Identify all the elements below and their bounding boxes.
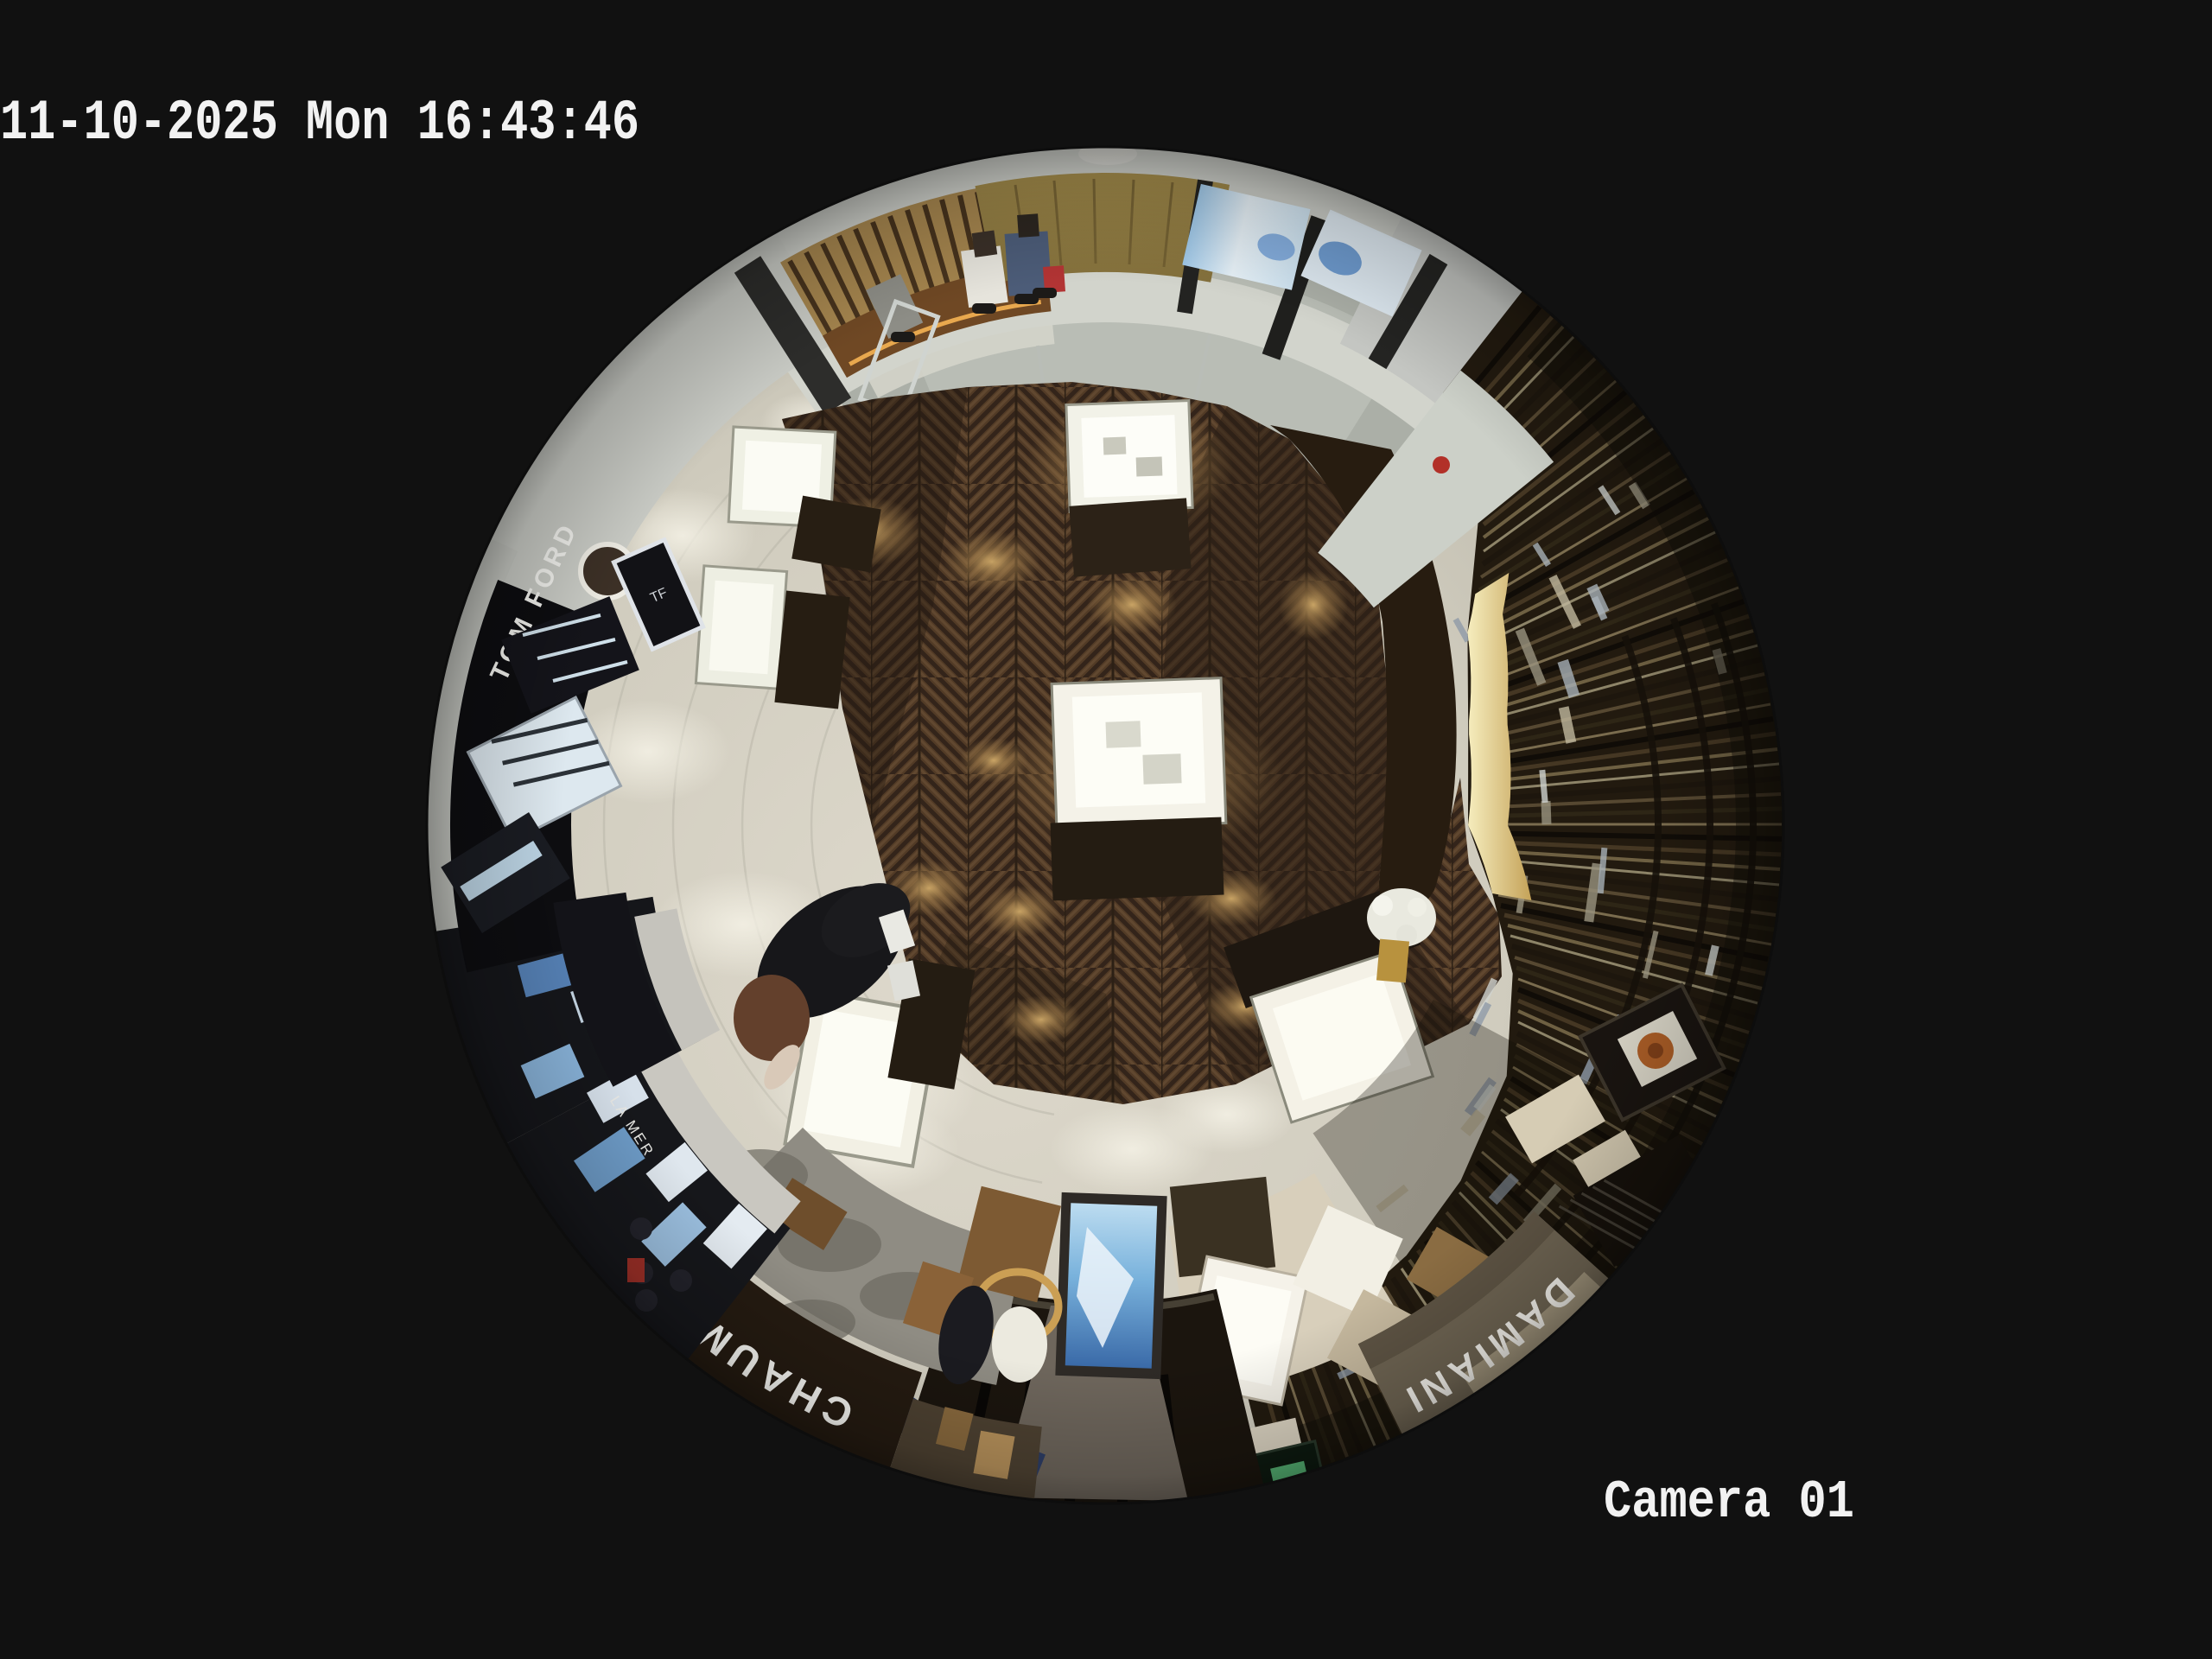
svg-text:11-10-2025 Mon 16:43:46: 11-10-2025 Mon 16:43:46 (0, 91, 639, 156)
svg-text:Camera 01: Camera 01 (1604, 1471, 1854, 1533)
